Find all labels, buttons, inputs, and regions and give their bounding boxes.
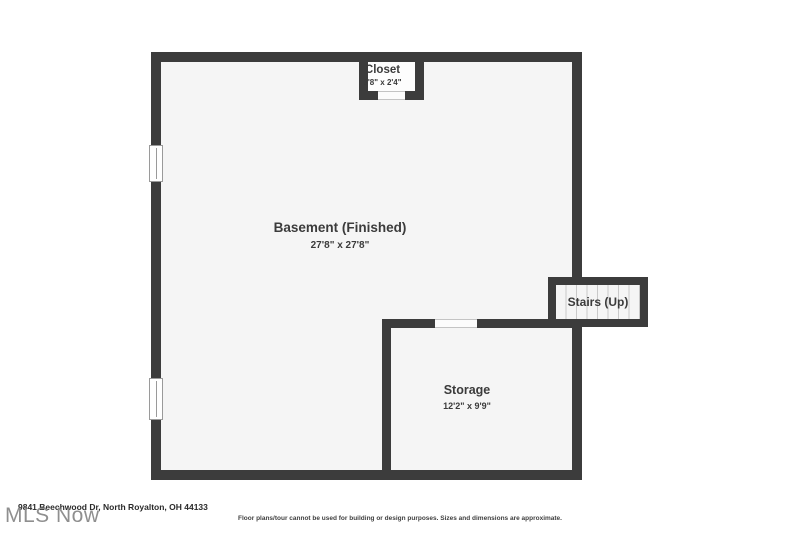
storage-name: Storage bbox=[392, 383, 542, 399]
closet-dimensions: 3'8" x 2'4" bbox=[354, 78, 411, 88]
wall-right-upper bbox=[572, 52, 582, 277]
closet-label: Closet 3'8" x 2'4" bbox=[354, 63, 411, 88]
storage-wall-left bbox=[382, 319, 391, 480]
closet-name: Closet bbox=[354, 63, 411, 77]
basement-name: Basement (Finished) bbox=[220, 220, 460, 237]
window-symbol-lower bbox=[149, 378, 163, 420]
closet-door-opening bbox=[378, 91, 405, 100]
closet-wall-stub-right bbox=[405, 91, 424, 100]
storage-door-opening bbox=[435, 319, 477, 328]
basement-label: Basement (Finished) 27'8" x 27'8" bbox=[220, 220, 460, 252]
floor-plan-page: Basement (Finished) 27'8" x 27'8" Closet… bbox=[0, 0, 800, 534]
disclaimer-text: Floor plans/tour cannot be used for buil… bbox=[0, 515, 800, 522]
stairs-label: Stairs (Up) bbox=[548, 277, 648, 327]
basement-dimensions: 27'8" x 27'8" bbox=[220, 240, 460, 253]
closet-wall-stub-left bbox=[359, 91, 378, 100]
window-symbol-upper bbox=[149, 145, 163, 182]
wall-right-lower bbox=[572, 327, 582, 480]
wall-bottom bbox=[151, 470, 582, 480]
window-pane-line bbox=[156, 148, 157, 179]
storage-label: Storage 12'2" x 9'9" bbox=[392, 383, 542, 412]
storage-wall-top bbox=[382, 319, 572, 328]
window-pane-line bbox=[156, 381, 157, 417]
storage-dimensions: 12'2" x 9'9" bbox=[392, 401, 542, 412]
